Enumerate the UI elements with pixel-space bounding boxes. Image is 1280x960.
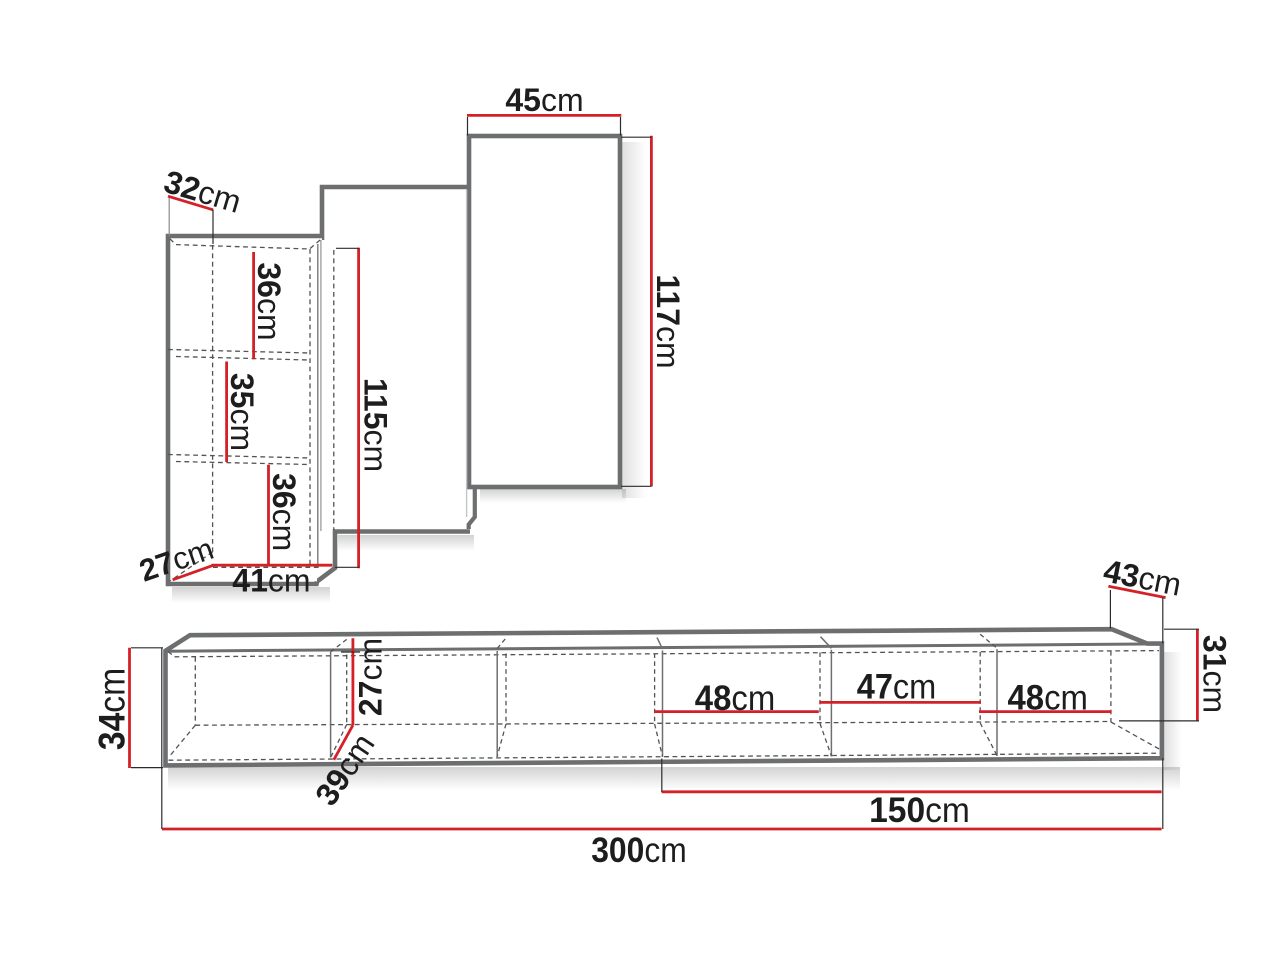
- svg-text:150cm: 150cm: [869, 791, 970, 830]
- svg-text:48cm: 48cm: [695, 679, 775, 718]
- svg-text:36cm: 36cm: [251, 262, 287, 340]
- svg-text:41cm: 41cm: [232, 563, 310, 599]
- svg-text:48cm: 48cm: [1007, 679, 1087, 718]
- svg-text:115cm: 115cm: [358, 378, 394, 472]
- svg-text:27cm: 27cm: [352, 638, 388, 716]
- svg-text:36cm: 36cm: [266, 473, 302, 551]
- svg-text:45cm: 45cm: [505, 82, 583, 118]
- svg-text:117cm: 117cm: [650, 274, 686, 368]
- svg-text:31cm: 31cm: [1197, 635, 1233, 713]
- svg-text:47cm: 47cm: [857, 667, 937, 706]
- svg-text:34cm: 34cm: [92, 668, 133, 750]
- svg-text:35cm: 35cm: [224, 373, 260, 451]
- svg-text:300cm: 300cm: [591, 832, 687, 871]
